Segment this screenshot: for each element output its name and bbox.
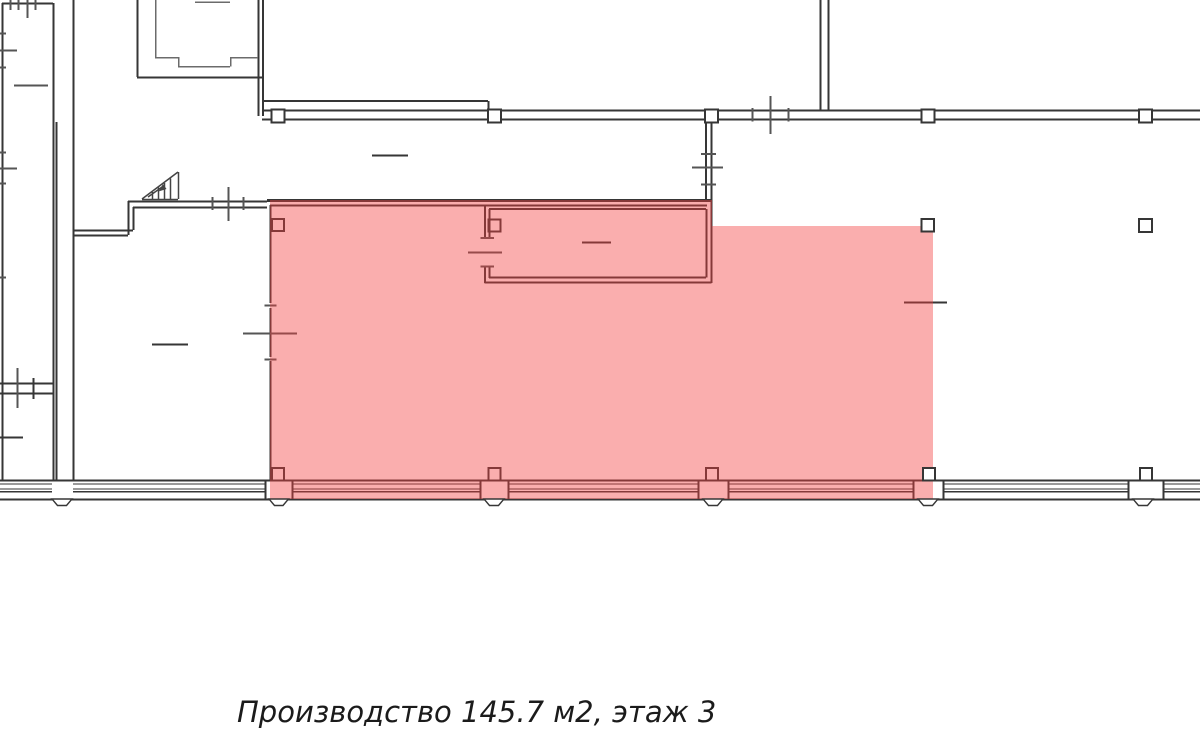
stairs-icon bbox=[142, 172, 179, 200]
room-highlight-overlay[interactable] bbox=[270, 200, 933, 499]
elevator-shaft-outline bbox=[155, 0, 258, 67]
floor-plan-viewport: Производство 145.7 м2, этаж 3 bbox=[0, 0, 1200, 745]
room-caption: Производство 145.7 м2, этаж 3 bbox=[237, 695, 797, 729]
floor-plan-svg bbox=[0, 0, 1200, 745]
